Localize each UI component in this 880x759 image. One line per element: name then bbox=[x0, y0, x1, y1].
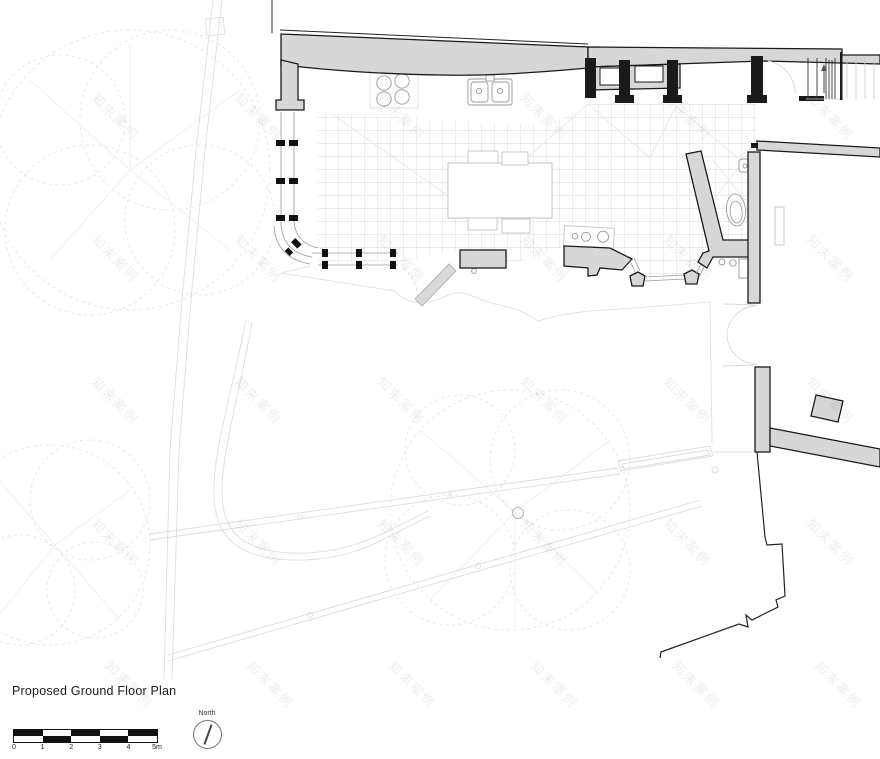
svg-text:知末案例: 知末案例 bbox=[89, 90, 142, 143]
site-boundary bbox=[660, 452, 785, 658]
svg-text:知末案例: 知末案例 bbox=[804, 516, 857, 569]
svg-text:知末案例: 知末案例 bbox=[232, 90, 285, 143]
scale-bar-segment bbox=[14, 736, 43, 742]
sink-icon bbox=[468, 75, 512, 105]
svg-text:知末案例: 知末案例 bbox=[232, 374, 285, 427]
scale-bar bbox=[13, 729, 158, 743]
svg-text:知末案例: 知末案例 bbox=[812, 658, 865, 711]
svg-text:知末案例: 知末案例 bbox=[661, 374, 714, 427]
scale-label-1: 1 bbox=[41, 744, 45, 751]
kitchen-island bbox=[448, 163, 552, 218]
scale-bar-segment bbox=[43, 736, 72, 742]
scale-label-0: 0 bbox=[12, 744, 16, 751]
plan-title: Proposed Ground Floor Plan bbox=[12, 684, 176, 698]
tree-canopy-southwest bbox=[0, 440, 150, 645]
svg-text:知末案例: 知末案例 bbox=[386, 658, 439, 711]
svg-text:知末案例: 知末案例 bbox=[244, 658, 297, 711]
svg-text:知末案例: 知末案例 bbox=[804, 232, 857, 285]
svg-text:知末案例: 知末案例 bbox=[518, 516, 571, 569]
svg-text:知末案例: 知末案例 bbox=[661, 516, 714, 569]
north-label: North bbox=[198, 710, 215, 717]
counter-appliances bbox=[564, 226, 615, 249]
svg-text:知末案例: 知末案例 bbox=[89, 232, 142, 285]
scale-bar-segment bbox=[71, 736, 100, 742]
floor-plan-page: 知末案例 知末案例 知末案例 知末案例 知末案例 知末案例 知末案例 知末案例 … bbox=[0, 0, 880, 759]
svg-text:知末案例: 知末案例 bbox=[375, 374, 428, 427]
svg-text:知末案例: 知末案例 bbox=[89, 374, 142, 427]
scale-label-4: 4 bbox=[126, 744, 130, 751]
scale-bar-segment bbox=[128, 736, 157, 742]
svg-text:知末案例: 知末案例 bbox=[518, 374, 571, 427]
north-needle-icon bbox=[203, 724, 212, 744]
scale-bar-segment bbox=[100, 736, 129, 742]
svg-text:知末案例: 知末案例 bbox=[670, 658, 723, 711]
svg-text:知末案例: 知末案例 bbox=[804, 90, 857, 143]
svg-text:知末案例: 知末案例 bbox=[528, 658, 581, 711]
scale-label-2: 2 bbox=[69, 744, 73, 751]
floor-plan-drawing: 知末案例 知末案例 知末案例 知末案例 知末案例 知末案例 知末案例 知末案例 … bbox=[0, 0, 880, 759]
svg-text:知末案例: 知末案例 bbox=[89, 516, 142, 569]
svg-text:知末案例: 知末案例 bbox=[232, 516, 285, 569]
scale-label-5: 5m bbox=[152, 744, 162, 751]
scale-label-3: 3 bbox=[98, 744, 102, 751]
north-indicator bbox=[193, 720, 222, 749]
tree-canopy-south bbox=[385, 390, 630, 630]
